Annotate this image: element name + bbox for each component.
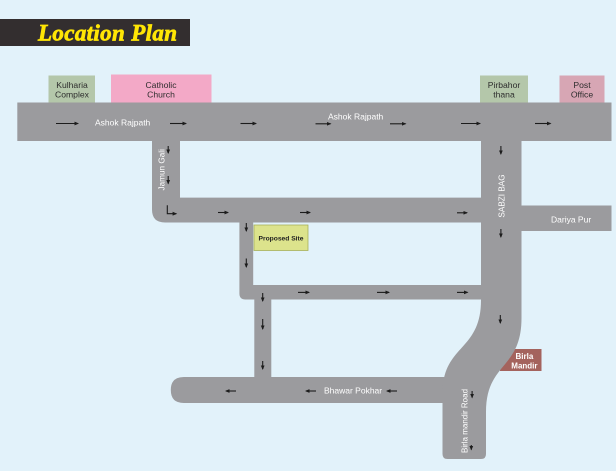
- svg-text:Office: Office: [571, 89, 594, 99]
- svg-text:Ashok Rajpath: Ashok Rajpath: [95, 118, 151, 128]
- svg-text:Location Plan: Location Plan: [37, 21, 177, 46]
- svg-text:Ashok Rajpath: Ashok Rajpath: [328, 112, 384, 122]
- svg-text:Proposed Site: Proposed Site: [259, 236, 304, 243]
- svg-text:Church: Church: [147, 89, 175, 99]
- svg-text:SABZI BAG: SABZI BAG: [498, 174, 507, 217]
- svg-text:Birla mandir Road: Birla mandir Road: [460, 389, 469, 453]
- svg-text:Mandir: Mandir: [511, 362, 537, 371]
- svg-text:Jamun Gali: Jamun Gali: [157, 149, 166, 191]
- svg-text:Complex: Complex: [55, 89, 90, 99]
- svg-text:Dariya Pur: Dariya Pur: [551, 215, 591, 225]
- svg-text:Bhawar Pokhar: Bhawar Pokhar: [324, 385, 382, 395]
- svg-text:thana: thana: [493, 89, 515, 99]
- svg-text:Birla: Birla: [516, 352, 534, 361]
